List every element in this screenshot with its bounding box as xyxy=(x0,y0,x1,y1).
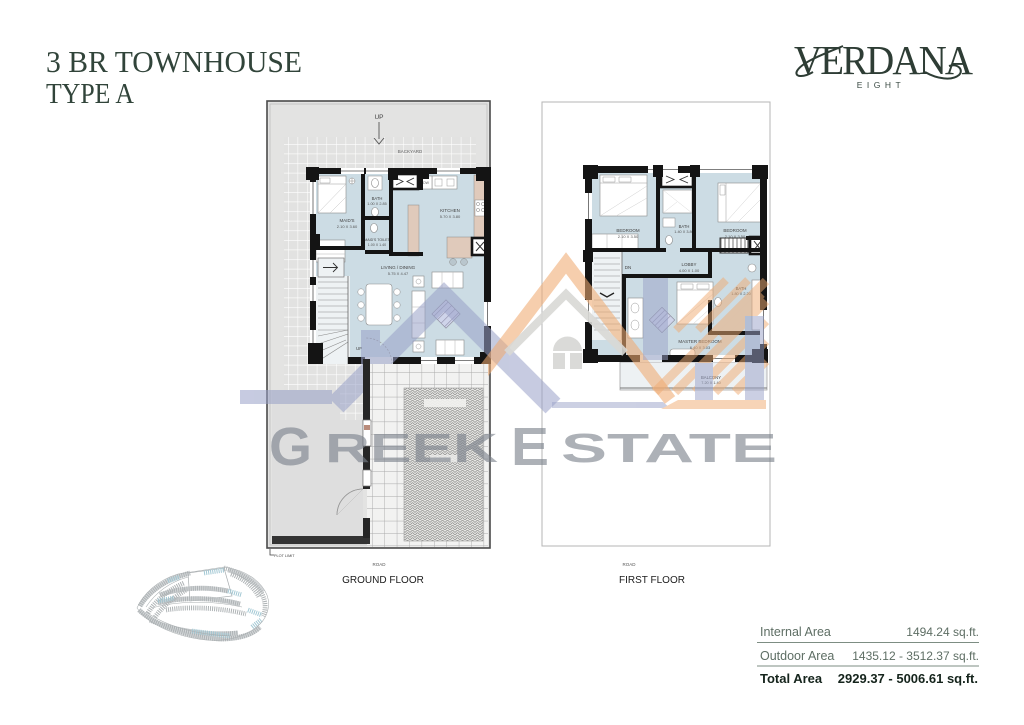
svg-text:DW: DW xyxy=(423,181,430,185)
svg-text:FIRST FLOOR: FIRST FLOOR xyxy=(619,575,685,586)
svg-text:BACKYARD: BACKYARD xyxy=(398,149,423,154)
svg-text:2929.37 - 5006.61 sq.ft.: 2929.37 - 5006.61 sq.ft. xyxy=(838,671,978,686)
svg-text:Total Area: Total Area xyxy=(760,671,823,686)
svg-text:1.00 X 2.85: 1.00 X 2.85 xyxy=(367,202,386,206)
svg-text:BEDROOM: BEDROOM xyxy=(616,228,640,233)
svg-text:1.40 X 3.80: 1.40 X 3.80 xyxy=(674,230,693,234)
svg-text:G: G xyxy=(269,417,312,477)
svg-text:BATH: BATH xyxy=(679,224,690,229)
svg-text:5.70 X 3.80: 5.70 X 3.80 xyxy=(440,214,461,219)
svg-text:REEK: REEK xyxy=(325,425,499,471)
svg-text:UP: UP xyxy=(374,114,383,121)
svg-text:KITCHEN: KITCHEN xyxy=(440,208,460,213)
svg-text:4.00 X 1.00: 4.00 X 1.00 xyxy=(679,268,700,273)
svg-text:PLOT LIMIT: PLOT LIMIT xyxy=(274,554,295,558)
svg-text:MAID'S: MAID'S xyxy=(339,218,354,223)
svg-text:3 BR TOWNHOUSE: 3 BR TOWNHOUSE xyxy=(46,45,302,79)
svg-text:TYPE A: TYPE A xyxy=(46,79,134,110)
svg-text:Outdoor Area: Outdoor Area xyxy=(760,649,834,663)
svg-text:DN: DN xyxy=(625,265,632,270)
svg-text:BATH: BATH xyxy=(372,196,383,201)
svg-text:EIGHT: EIGHT xyxy=(857,80,905,90)
svg-text:E: E xyxy=(511,417,549,477)
svg-text:STATE: STATE xyxy=(561,425,777,471)
svg-text:2.10 X 3.50: 2.10 X 3.50 xyxy=(618,234,639,239)
svg-text:LIVING / DINING: LIVING / DINING xyxy=(381,265,416,270)
svg-text:MAID'S TOILET: MAID'S TOILET xyxy=(364,238,390,242)
svg-text:1.00 X 1.40: 1.00 X 1.40 xyxy=(368,243,386,247)
svg-text:2.10 X 3.60: 2.10 X 3.60 xyxy=(337,224,358,229)
svg-text:GROUND FLOOR: GROUND FLOOR xyxy=(342,575,424,586)
svg-text:Internal Area: Internal Area xyxy=(760,625,831,639)
svg-text:LOBBY: LOBBY xyxy=(681,262,696,267)
svg-text:ROAD: ROAD xyxy=(372,562,386,567)
svg-text:1435.12 - 3512.37 sq.ft.: 1435.12 - 3512.37 sq.ft. xyxy=(852,649,979,663)
svg-text:BEDROOM: BEDROOM xyxy=(723,228,747,233)
svg-text:ROAD: ROAD xyxy=(622,562,636,567)
svg-text:5.75 X 4.47: 5.75 X 4.47 xyxy=(388,271,409,276)
svg-text:1494.24 sq.ft.: 1494.24 sq.ft. xyxy=(906,625,979,639)
svg-text:VERDANA: VERDANA xyxy=(794,37,973,83)
